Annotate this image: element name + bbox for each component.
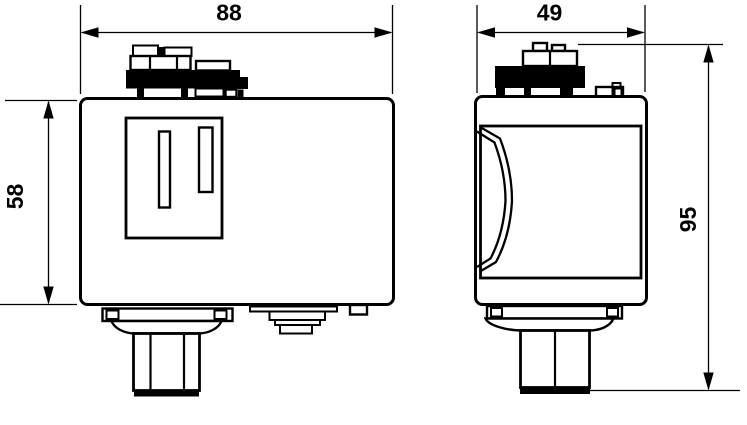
arrowhead-bottom xyxy=(703,373,713,391)
gland-step-4 xyxy=(280,325,312,334)
mount-hook-right xyxy=(607,308,618,317)
side-front-panel xyxy=(477,126,641,278)
dim-label-front-width: 88 xyxy=(216,0,242,26)
terminal-base-box-small xyxy=(226,90,237,98)
window-slot-right xyxy=(199,128,213,193)
mount-hook-right xyxy=(215,311,227,320)
terminal-bar xyxy=(126,70,240,89)
terminal-mid-row xyxy=(131,56,191,70)
arrowhead-top xyxy=(43,101,53,119)
mount-plate xyxy=(487,306,622,319)
terminal-base-box xyxy=(196,89,224,97)
front-cover-window xyxy=(126,118,222,238)
dim-label-total-height: 95 xyxy=(675,207,701,233)
side-bellows-connector xyxy=(486,306,623,394)
gland-side-tab xyxy=(350,305,367,315)
arrowhead-bottom xyxy=(43,287,53,305)
terminal-tab-1 xyxy=(533,43,547,51)
bellows-dome xyxy=(486,319,614,331)
dim-body-height: 58 xyxy=(0,101,77,305)
terminal-bar xyxy=(495,66,585,88)
terminal-base-tick xyxy=(238,90,244,98)
side-terminal-block xyxy=(495,43,624,98)
front-bellows-connector xyxy=(103,309,233,397)
mount-hook-left xyxy=(107,311,119,320)
cylinder-base-band xyxy=(134,390,199,397)
arrowhead-top xyxy=(703,45,713,63)
dim-label-side-width: 49 xyxy=(537,0,563,26)
side-view xyxy=(476,43,647,394)
dimension-drawing: 88 49 58 95 xyxy=(0,0,747,425)
mount-hook-left xyxy=(491,308,502,317)
bellows-dome xyxy=(112,321,222,334)
arrowhead-right xyxy=(375,27,393,37)
drawing-canvas: 88 49 58 95 xyxy=(0,0,747,425)
terminal-right-box xyxy=(196,61,230,71)
front-capillary-gland xyxy=(250,305,367,334)
terminal-bar-step xyxy=(238,77,248,89)
connector-cylinder xyxy=(134,334,200,391)
arrowhead-left xyxy=(477,27,495,37)
arrowhead-left xyxy=(81,27,99,37)
front-view xyxy=(81,46,394,397)
cylinder-base-band xyxy=(520,387,590,394)
arrowhead-right xyxy=(627,27,645,37)
side-connector-plug-center xyxy=(616,90,621,96)
front-terminal-block xyxy=(126,46,248,99)
gland-step-2 xyxy=(270,312,326,321)
window-slot-left xyxy=(159,132,170,208)
dim-label-body-height: 58 xyxy=(2,184,28,210)
terminal-top-box-left xyxy=(133,46,158,57)
terminal-top-box-right xyxy=(165,48,192,57)
mount-plate xyxy=(103,309,233,322)
